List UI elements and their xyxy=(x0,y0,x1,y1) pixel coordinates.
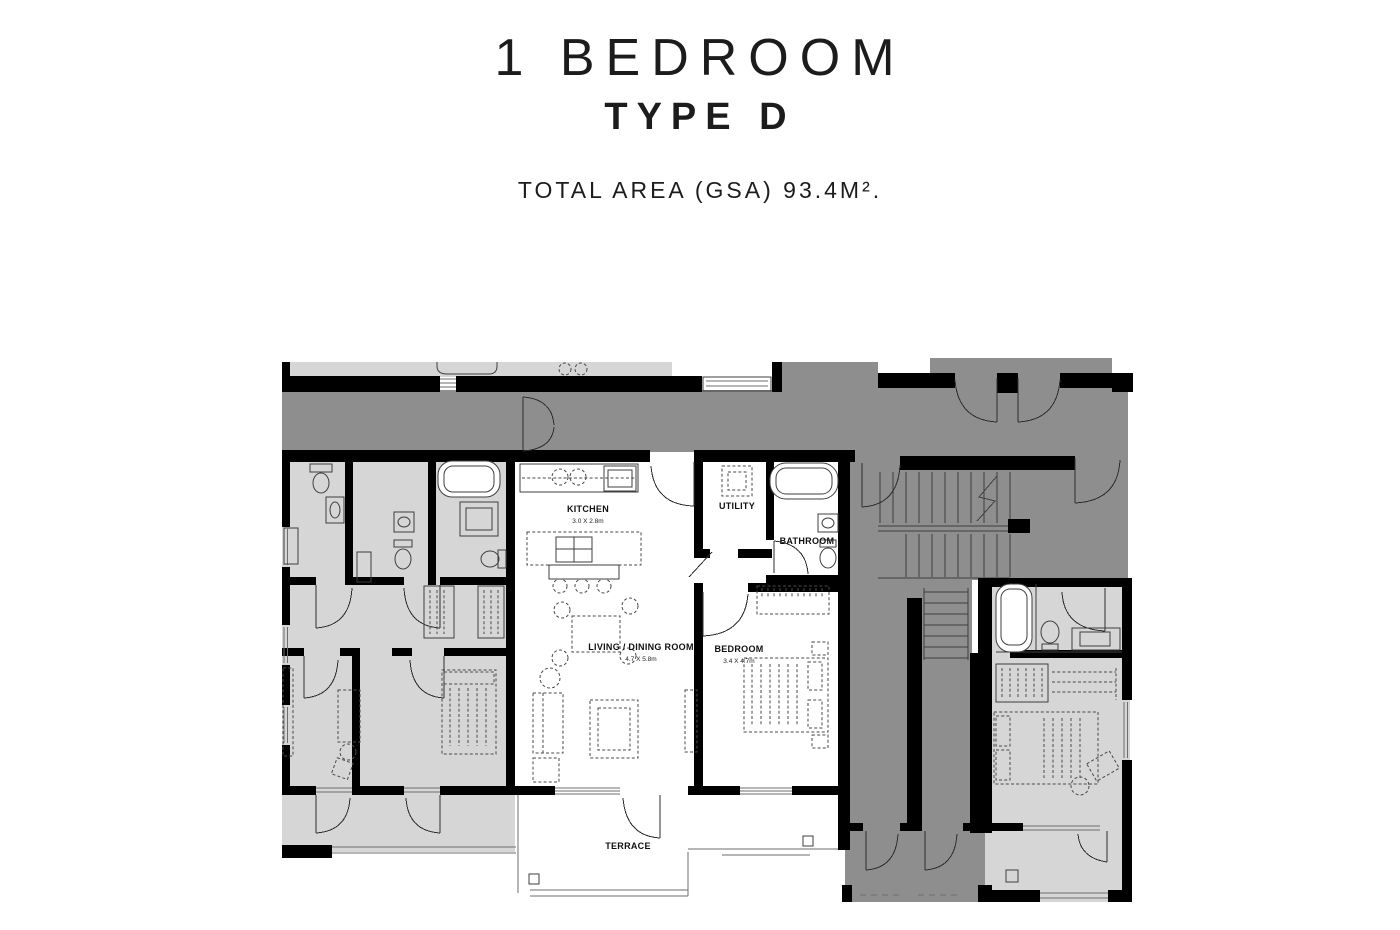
kitchen-dims: 3.0 X 2.8m xyxy=(572,518,603,525)
bedroom-dims: 3.4 X 4.7m xyxy=(723,658,754,665)
living-dims: 4.7 X 5.8m xyxy=(625,656,656,663)
bedroom-label: BEDROOM xyxy=(714,644,763,654)
page-canvas: 1 BEDROOM TYPE D TOTAL AREA (GSA) 93.4M²… xyxy=(0,0,1400,930)
kitchen-label: KITCHEN xyxy=(567,504,609,514)
bathroom-label: BATHROOM xyxy=(780,536,835,546)
utility-label: UTILITY xyxy=(719,501,755,511)
living-label: LIVING / DINING ROOM xyxy=(588,642,694,652)
terrace-label: TERRACE xyxy=(605,841,651,851)
floor-plan: KITCHEN 3.0 X 2.8m UTILITY BATHROOM LIVI… xyxy=(0,0,1400,930)
